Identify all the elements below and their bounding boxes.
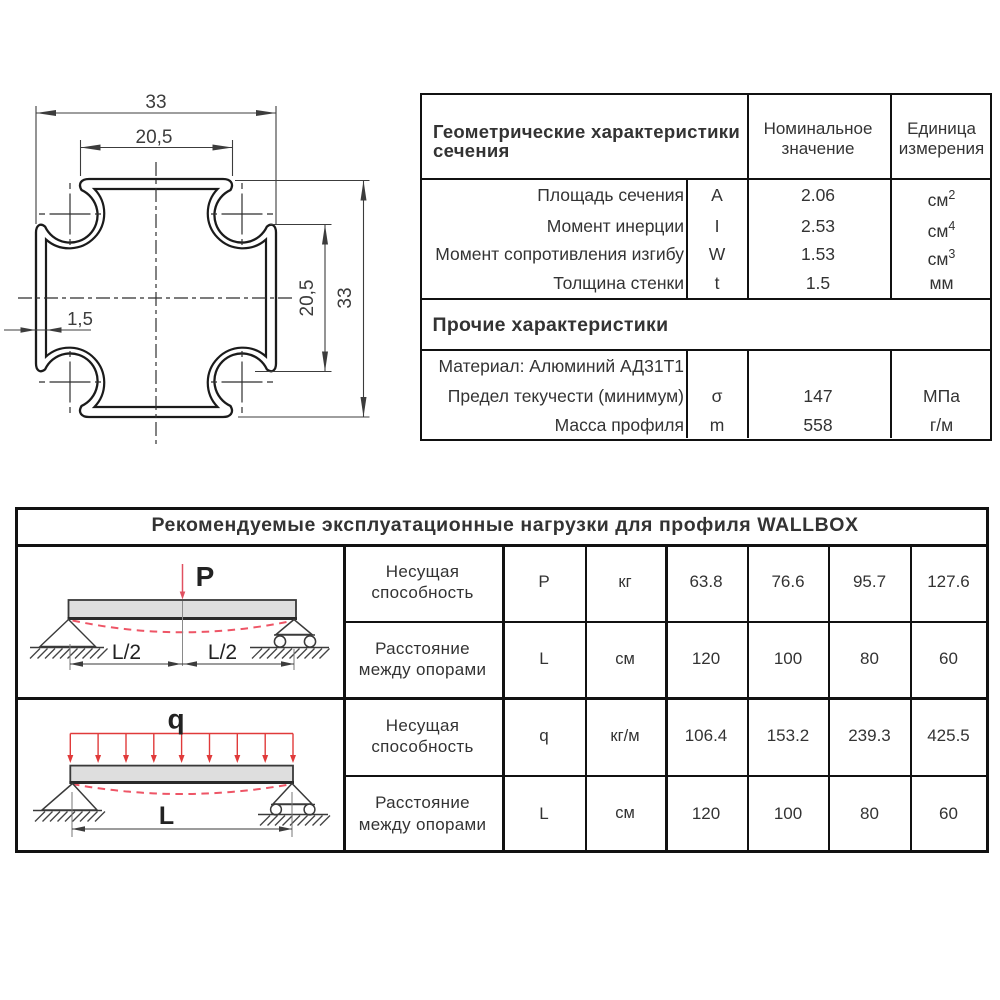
svg-text:L/2: L/2 — [208, 641, 237, 664]
svg-text:L: L — [159, 802, 174, 830]
svg-text:20,5: 20,5 — [136, 127, 173, 148]
svg-text:q: q — [167, 704, 184, 735]
svg-text:L/2: L/2 — [112, 641, 141, 664]
svg-text:P: P — [196, 561, 215, 592]
svg-text:33: 33 — [145, 92, 166, 113]
svg-text:1,5: 1,5 — [67, 308, 93, 329]
